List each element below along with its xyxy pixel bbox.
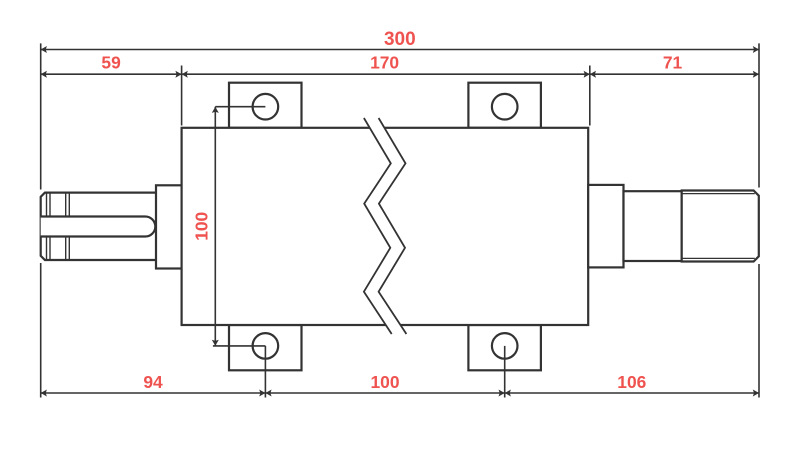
svg-text:100: 100: [370, 372, 399, 392]
svg-text:94: 94: [143, 372, 163, 392]
svg-text:100: 100: [192, 212, 212, 241]
svg-text:170: 170: [370, 52, 399, 72]
svg-text:71: 71: [663, 52, 683, 72]
svg-text:59: 59: [101, 52, 121, 72]
svg-text:300: 300: [384, 29, 416, 50]
svg-text:106: 106: [617, 372, 646, 392]
